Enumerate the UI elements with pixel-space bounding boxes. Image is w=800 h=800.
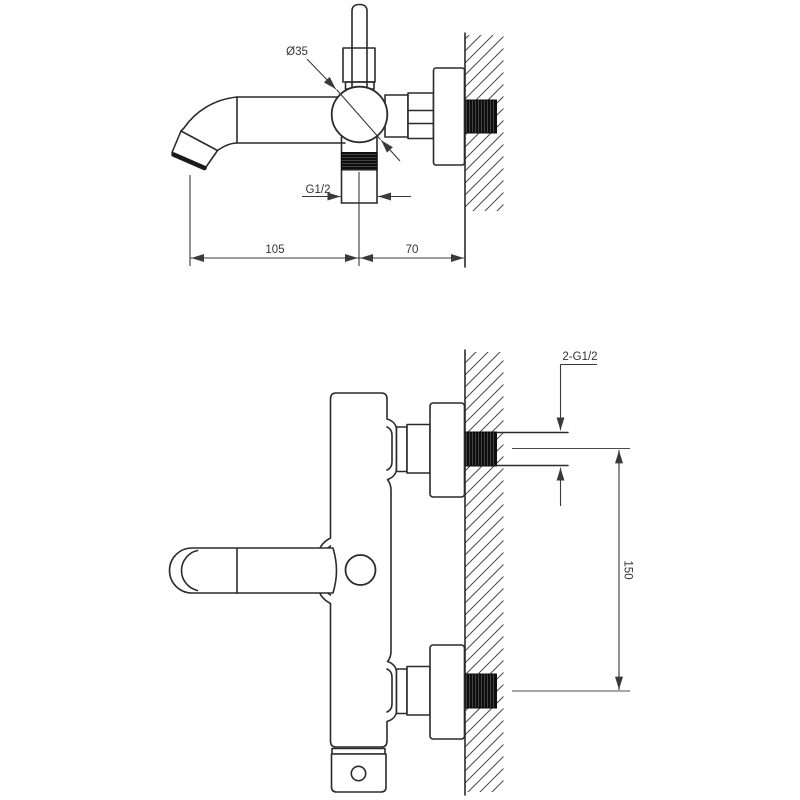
escutcheon-flange xyxy=(430,403,465,497)
front-view: 2-G1/2 150 xyxy=(170,350,634,795)
diameter-label: Ø35 xyxy=(286,46,308,58)
side-view-wall-section xyxy=(465,33,504,267)
dimension-inlet-threads: 2-G1/2 xyxy=(561,351,598,506)
connector-nut xyxy=(407,667,430,716)
wall-hatch xyxy=(466,352,504,792)
upper-wall-connector xyxy=(397,403,465,497)
diameter-leader xyxy=(307,59,336,89)
body-button-circle xyxy=(346,555,376,585)
handle-collar xyxy=(343,48,375,82)
bottom-cap xyxy=(332,749,387,793)
valve-body-circle xyxy=(332,87,388,143)
outlet-thread-band xyxy=(342,153,378,171)
handle-rod xyxy=(352,5,367,89)
lower-inlet-thread xyxy=(466,674,497,708)
spout xyxy=(172,97,345,169)
hex-nut xyxy=(408,93,434,139)
side-view: Ø35 G1/2 105 70 xyxy=(172,5,504,268)
diameter-tail xyxy=(381,140,400,161)
connector-nut xyxy=(407,425,430,474)
dimension-inlet-spacing: 150 xyxy=(619,450,634,690)
escutcheon-flange xyxy=(434,68,465,165)
spout-inner-curve xyxy=(205,143,345,169)
spout-outlet-face xyxy=(174,155,205,169)
spout-outer-curve xyxy=(172,97,345,153)
front-view-lever xyxy=(170,548,337,593)
outlet-thread-label: G1/2 xyxy=(306,184,331,196)
inlet-threads-label: 2-G1/2 xyxy=(562,351,597,363)
inlet-thread-in-wall xyxy=(466,100,497,133)
spout-tip-joint-line xyxy=(181,131,218,151)
upper-inlet-thread xyxy=(466,432,497,466)
escutcheon-flange xyxy=(430,645,465,739)
lower-wall-connector xyxy=(397,645,465,739)
front-view-wall-section xyxy=(465,350,504,795)
body-depth-label: 70 xyxy=(406,244,419,256)
inlet-spacing-label: 150 xyxy=(622,560,634,579)
connector-neck xyxy=(397,669,408,714)
spout-reach-label: 105 xyxy=(265,244,284,256)
handle-lever xyxy=(343,5,375,90)
cap-outlet-hole xyxy=(351,766,365,780)
cap-ring xyxy=(332,749,385,755)
faucet-drawing-svg: Ø35 G1/2 105 70 xyxy=(0,0,800,800)
side-view-wall-connector xyxy=(385,68,465,165)
dimension-outlet-thread: G1/2 xyxy=(302,184,411,197)
connector-neck xyxy=(397,427,408,472)
connector-tube xyxy=(385,95,408,137)
lever-pill xyxy=(170,548,337,593)
technical-drawing-page: Ø35 G1/2 105 70 xyxy=(0,0,800,800)
